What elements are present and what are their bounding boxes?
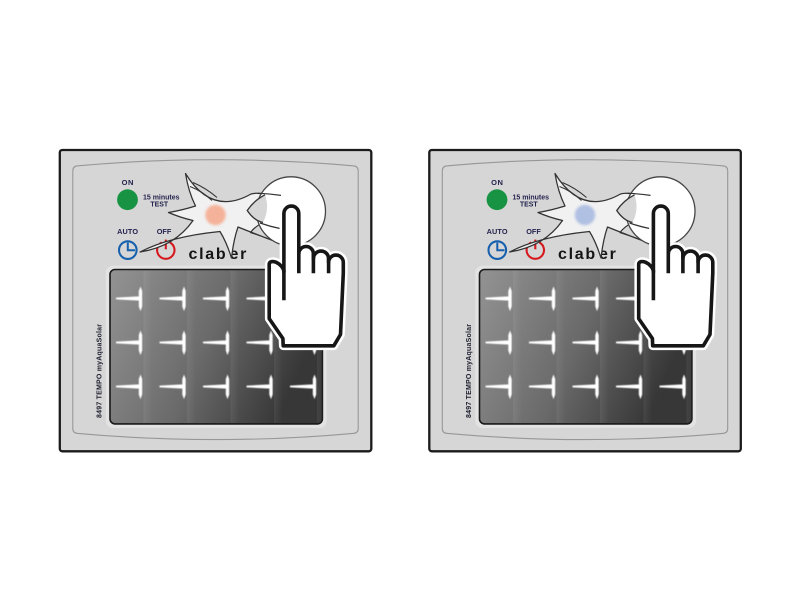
svg-text:8497 TEMPO myAquaSolar: 8497 TEMPO myAquaSolar: [97, 324, 104, 418]
svg-text:TEST: TEST: [520, 199, 538, 208]
svg-text:AUTO: AUTO: [487, 227, 508, 236]
svg-text:OFF: OFF: [157, 227, 172, 236]
svg-text:ON: ON: [122, 178, 134, 187]
svg-text:clab: clab: [189, 246, 228, 263]
svg-text:clab: clab: [558, 246, 597, 263]
svg-text:ON: ON: [491, 178, 503, 187]
svg-text:OFF: OFF: [526, 227, 541, 236]
svg-text:TEST: TEST: [150, 199, 168, 208]
svg-text:AUTO: AUTO: [117, 227, 138, 236]
svg-text:8497 TEMPO myAquaSolar: 8497 TEMPO myAquaSolar: [466, 324, 473, 418]
